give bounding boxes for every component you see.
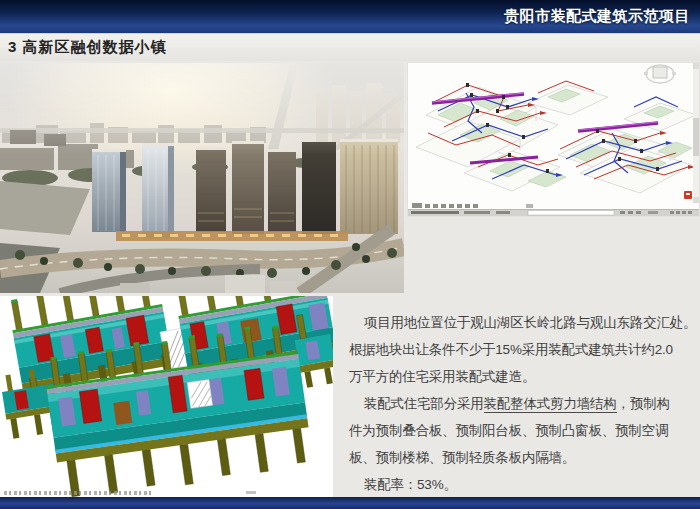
scrollbar <box>693 63 699 203</box>
description-line: 板、预制楼梯、预制轻质条板内隔墙。 <box>349 444 695 471</box>
bim-mep-svg <box>408 63 699 216</box>
project-description: 项目用地位置位于观山湖区长岭北路与观山东路交汇处。 根据地块出让条件不少于15%… <box>349 309 695 498</box>
precast-model-svg <box>0 296 333 497</box>
model-caption-micro-mark <box>246 491 256 494</box>
aerial-rendering-svg <box>0 63 404 293</box>
model-caption-micro-text <box>4 491 152 495</box>
line4-prefix: 装配式住宅部分采用 <box>364 396 484 411</box>
description-line: 件为预制叠合板、预制阳台板、预制凸窗板、预制空调 <box>349 417 695 444</box>
slide-footer-bar <box>0 497 700 509</box>
project-header-title: 贵阳市装配式建筑示范项目 <box>504 7 700 26</box>
warning-icon-glyph <box>686 193 690 195</box>
section-title-strip: 3 高新区融创数据小镇 <box>0 33 700 61</box>
lit-podium <box>116 231 348 241</box>
slide-header-bar: 贵阳市装配式建筑示范项目 <box>0 0 700 33</box>
precast-structure-model-image <box>0 296 333 497</box>
atmospheric-haze <box>0 63 404 155</box>
underlined-structure-term: 装配整体式剪力墙结构 <box>484 396 617 413</box>
assembly-rate-line: 装配率：53%。 <box>349 471 695 498</box>
status-bar <box>408 209 699 216</box>
description-line: 万平方的住宅采用装配式建造。 <box>349 363 695 390</box>
section-title: 3 高新区融创数据小镇 <box>0 38 167 57</box>
description-line: 根据地块出让条件不少于15%采用装配式建筑共计约2.0 <box>349 336 695 363</box>
presentation-slide: 贵阳市装配式建筑示范项目 3 高新区融创数据小镇 <box>0 0 700 509</box>
bim-mep-screenshot <box>408 63 699 216</box>
description-line: 装配式住宅部分采用装配整体式剪力墙结构，预制构 <box>349 390 695 417</box>
line4-suffix: ，预制构 <box>617 396 670 411</box>
aerial-rendering-image <box>0 63 404 293</box>
description-line: 项目用地位置位于观山湖区长岭北路与观山东路交汇处。 <box>349 309 695 336</box>
